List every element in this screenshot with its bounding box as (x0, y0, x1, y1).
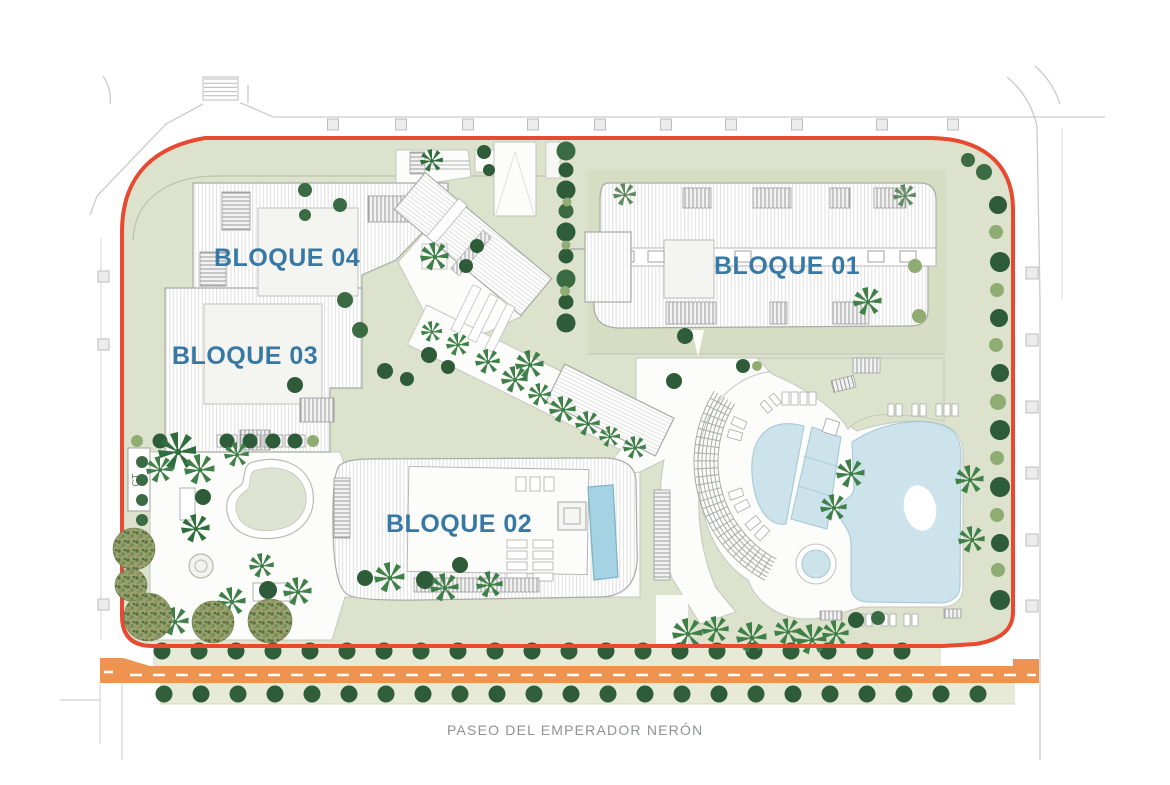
svg-text:BLOQUE 01: BLOQUE 01 (714, 252, 860, 280)
svg-text:PASEO DEL EMPERADOR NERÓN: PASEO DEL EMPERADOR NERÓN (447, 722, 703, 738)
svg-text:BLOQUE 02: BLOQUE 02 (386, 510, 532, 538)
svg-text:BLOQUE 03: BLOQUE 03 (172, 342, 318, 370)
svg-text:BLOQUE 04: BLOQUE 04 (214, 244, 360, 272)
